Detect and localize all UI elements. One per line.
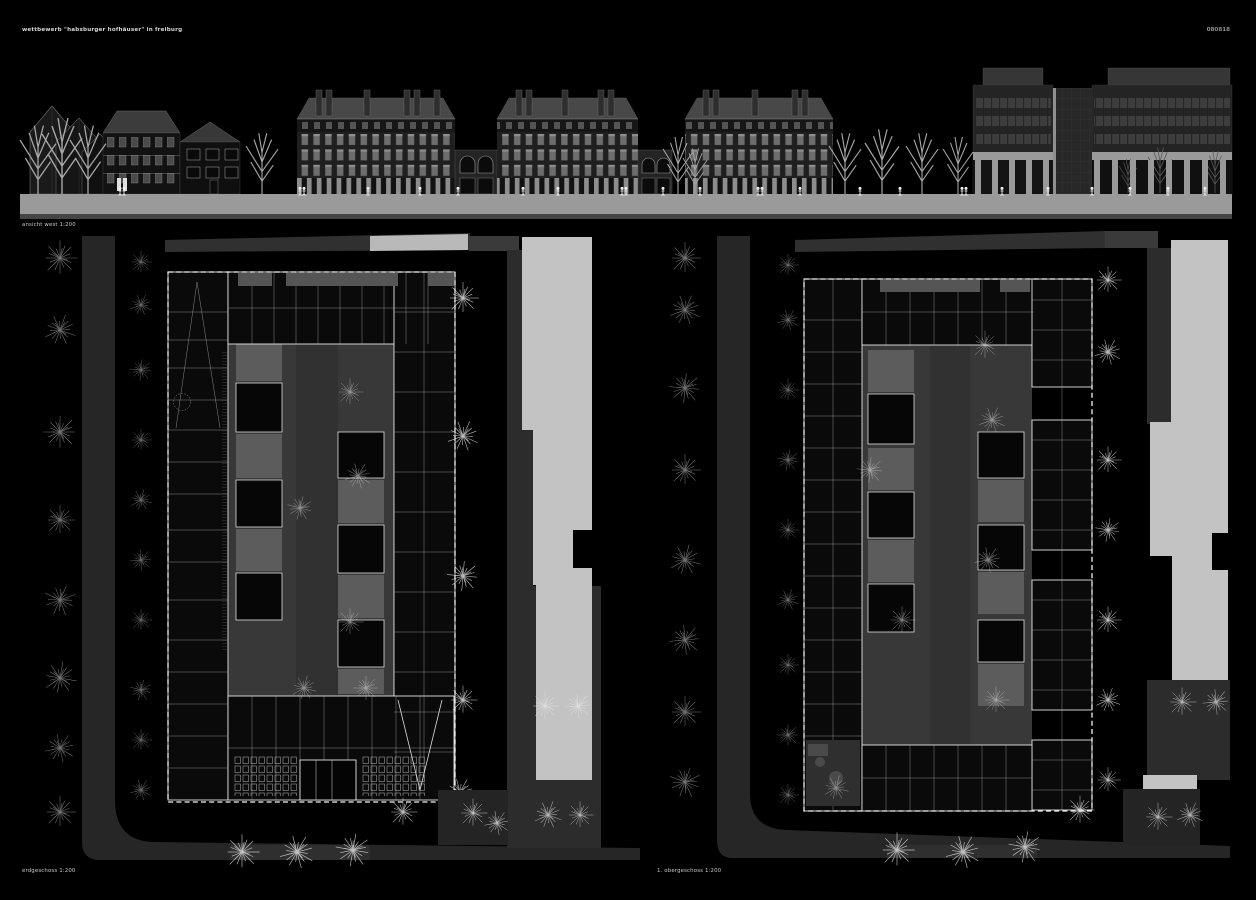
elevation-arched-link-1 — [455, 150, 497, 195]
presentation-board: wettbewerb "habsburger hofhäuser" in fre… — [0, 0, 1256, 900]
corner-block-left — [438, 790, 515, 845]
elevation-glazed-tower — [1053, 88, 1092, 195]
elevation-caption: ansicht west 1:200 — [22, 222, 76, 228]
elevation-office-block-1 — [973, 68, 1053, 195]
elevation-office-block-2 — [1092, 68, 1232, 195]
bike-racks — [234, 756, 298, 796]
elevation-housing-block-3 — [685, 90, 833, 195]
elevation-arched-link-2 — [638, 150, 672, 195]
terraces — [880, 280, 1030, 292]
elevation-historic-building — [103, 111, 180, 194]
upper-strip-left — [469, 236, 519, 251]
plan-left-caption: erdgeschoss 1:200 — [22, 868, 76, 874]
board-canvas: wettbewerb "habsburger hofhäuser" in fre… — [0, 0, 1256, 900]
plan-right-caption: 1. obergeschoss 1:200 — [657, 868, 722, 874]
board-code: 080818 — [1207, 27, 1230, 33]
upper-sidewalk-wedge-left — [370, 234, 468, 251]
ground-floor-plan — [168, 272, 486, 810]
courtyard-path — [296, 344, 338, 696]
roof-garden — [806, 740, 860, 806]
upper-strip-right — [1105, 231, 1158, 248]
ground-plane — [20, 194, 1232, 219]
elevation-housing-block-2 — [497, 90, 638, 195]
elevation-housing-block-1 — [297, 90, 455, 195]
ground-floor-plan-panel: erdgeschoss 1:200 — [22, 233, 640, 874]
courtyard-path — [930, 345, 970, 745]
entry-hall — [300, 760, 356, 800]
board-title: wettbewerb "habsburger hofhäuser" in fre… — [22, 27, 182, 33]
